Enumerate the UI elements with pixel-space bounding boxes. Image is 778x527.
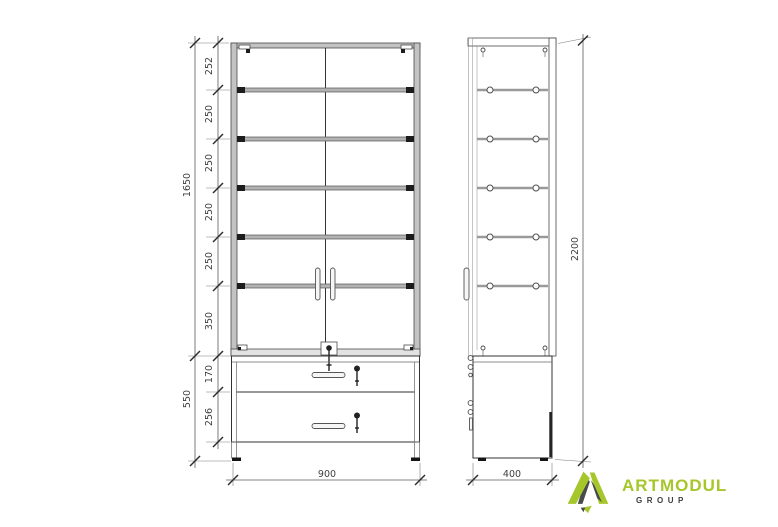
logo-subtitle: GROUP bbox=[636, 496, 727, 505]
plinth-leg-left bbox=[232, 442, 237, 458]
dimension-ticks bbox=[190, 36, 588, 486]
side-door-edge bbox=[469, 38, 473, 356]
front-left-frame bbox=[231, 43, 237, 356]
shelf-5 bbox=[237, 283, 414, 289]
side-view bbox=[464, 38, 556, 461]
dim-label-drawer1: 170 bbox=[204, 365, 215, 383]
shelf-4 bbox=[237, 234, 414, 240]
technical-drawing-page: 252 250 250 250 250 350 1650 170 256 550… bbox=[0, 0, 778, 527]
front-foot-left bbox=[232, 458, 241, 462]
side-shelf-1 bbox=[477, 87, 548, 93]
side-back-wall bbox=[549, 38, 556, 356]
plinth-leg-right bbox=[415, 442, 420, 458]
drawer2-key-icon bbox=[354, 413, 360, 434]
drawer2-handle bbox=[312, 424, 345, 429]
dim-label-seg3: 250 bbox=[204, 154, 215, 172]
logo-mark-icon bbox=[564, 466, 612, 516]
logo: ARTMODUL GROUP bbox=[564, 466, 727, 516]
front-right-frame bbox=[414, 43, 420, 356]
dimension-labels: 252 250 250 250 250 350 1650 170 256 550… bbox=[182, 57, 581, 480]
dim-label-seg6: 350 bbox=[204, 312, 215, 330]
bottom-bracket-right-icon bbox=[404, 345, 413, 350]
side-shelf-5 bbox=[477, 283, 548, 289]
shelf-3 bbox=[237, 185, 414, 191]
dim-label-drawer2: 256 bbox=[204, 408, 215, 426]
front-view-glass-section bbox=[231, 43, 420, 371]
front-view-base bbox=[232, 356, 421, 461]
dim-label-depth: 400 bbox=[503, 469, 521, 480]
shelf-1 bbox=[237, 87, 414, 93]
dim-label-total-height: 2200 bbox=[570, 237, 581, 261]
side-shelf-4 bbox=[477, 234, 548, 240]
side-foot-front bbox=[478, 458, 486, 462]
door-handle-left bbox=[316, 268, 321, 300]
side-lock-hardware-icon bbox=[468, 356, 473, 430]
dim-label-seg1: 252 bbox=[204, 57, 215, 75]
logo-name: ARTMODUL bbox=[622, 477, 727, 494]
side-bottom-screws-icon bbox=[481, 346, 547, 356]
side-door-handle bbox=[464, 268, 469, 300]
dim-label-seg4: 250 bbox=[204, 203, 215, 221]
base-outline bbox=[232, 356, 420, 442]
dim-label-width: 900 bbox=[318, 469, 336, 480]
hinge-top-left-icon bbox=[239, 45, 250, 53]
dim-label-base-height: 550 bbox=[182, 390, 193, 408]
cabinet-drawing: 252 250 250 250 250 350 1650 170 256 550… bbox=[0, 0, 778, 527]
side-top-screws-icon bbox=[481, 48, 547, 57]
door-handle-right bbox=[331, 268, 336, 300]
drawer1-handle bbox=[312, 373, 345, 378]
bottom-bracket-left-icon bbox=[238, 345, 247, 350]
side-base-outline bbox=[473, 356, 552, 458]
side-shelf-3 bbox=[477, 185, 548, 191]
dimension-lines: 252 250 250 250 250 350 1650 170 256 550… bbox=[182, 34, 591, 486]
dim-label-seg2: 250 bbox=[204, 105, 215, 123]
shelf-2 bbox=[237, 136, 414, 142]
front-top-frame bbox=[231, 43, 420, 48]
side-shelf-2 bbox=[477, 136, 548, 142]
side-top-panel bbox=[468, 38, 556, 46]
dim-label-seg5: 250 bbox=[204, 252, 215, 270]
front-foot-right bbox=[411, 458, 420, 462]
hinge-top-right-icon bbox=[401, 45, 412, 53]
dim-label-glass-height: 1650 bbox=[182, 173, 193, 197]
drawer1-key-icon bbox=[354, 366, 360, 387]
logo-text: ARTMODUL GROUP bbox=[622, 477, 727, 505]
side-foot-back bbox=[540, 458, 548, 462]
